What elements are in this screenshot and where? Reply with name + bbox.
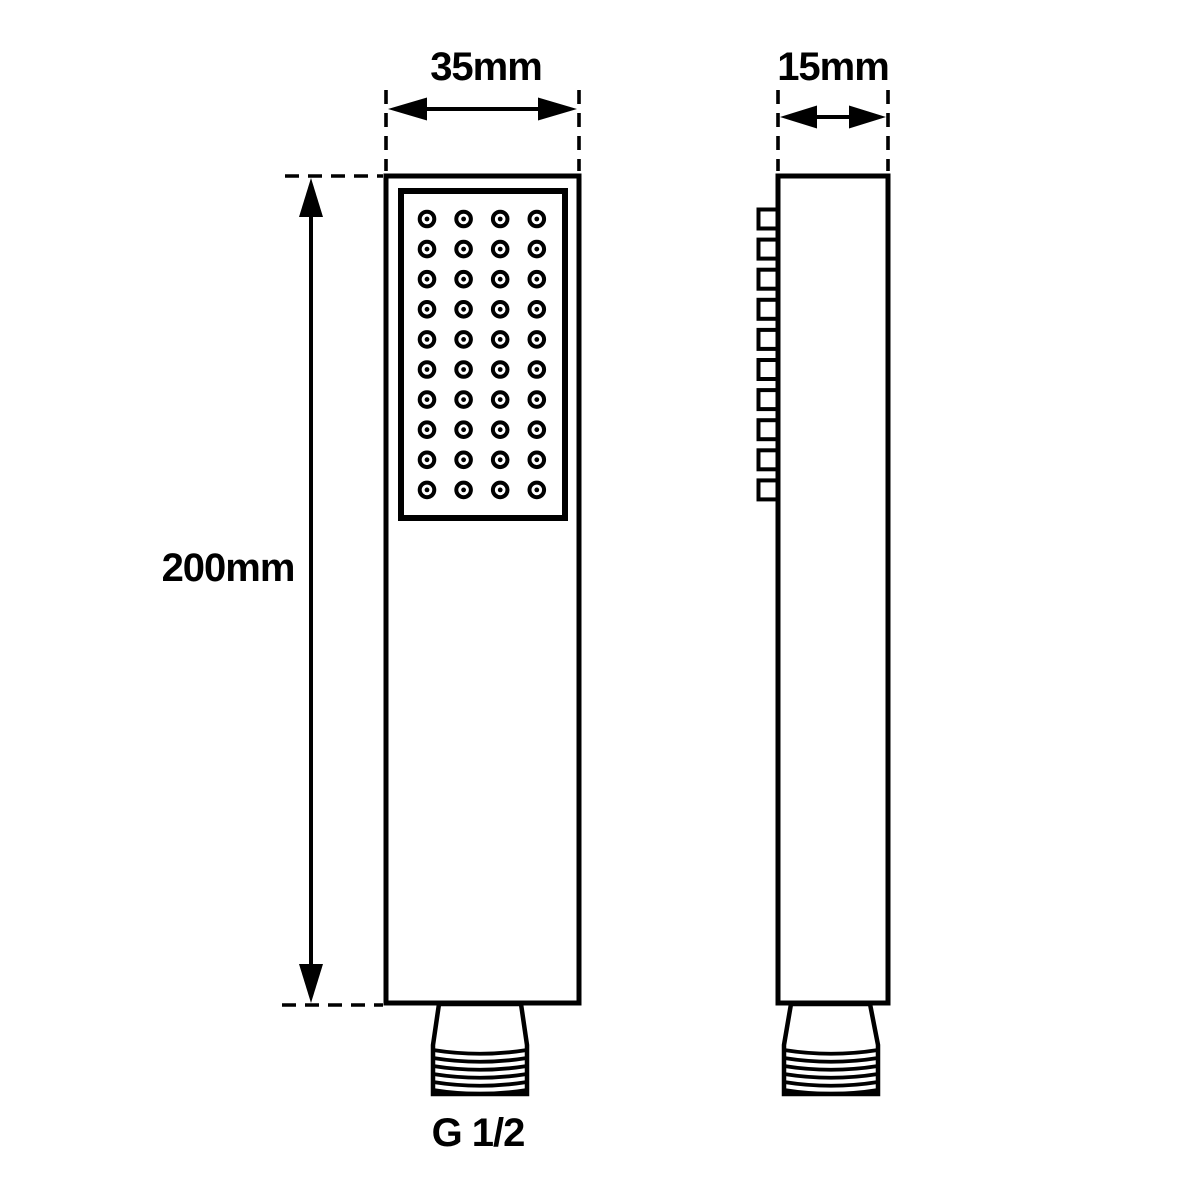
nozzle-center-dot (498, 367, 503, 372)
nozzle-bump (759, 360, 779, 379)
nozzle-center-dot (425, 247, 430, 252)
nozzle-center-dot (534, 247, 539, 252)
nozzle-bump (759, 390, 779, 409)
nozzle-center-dot (425, 488, 430, 493)
nozzle-center-dot (461, 337, 466, 342)
nozzle-center-dot (498, 427, 503, 432)
nozzle-center-dot (498, 397, 503, 402)
nozzle-center-dot (498, 247, 503, 252)
nozzle-center-dot (425, 457, 430, 462)
nozzle-center-dot (425, 427, 430, 432)
height-dimension: 200mm (162, 176, 383, 1005)
nozzle-center-dot (498, 307, 503, 312)
nozzle-center-dot (498, 457, 503, 462)
nozzle-center-dot (425, 337, 430, 342)
nozzle-center-dot (461, 367, 466, 372)
nozzle-center-dot (425, 397, 430, 402)
width-dimension-label: 35mm (430, 45, 542, 89)
nozzle-center-dot (425, 307, 430, 312)
nozzle-bump (759, 420, 779, 439)
nozzle-center-dot (461, 217, 466, 222)
arrowhead-left-icon (780, 106, 817, 129)
nozzle-center-dot (534, 367, 539, 372)
side-view (759, 176, 889, 1094)
arrowhead-up-icon (299, 178, 323, 217)
nozzle-bump (759, 450, 779, 469)
nozzle-center-dot (461, 307, 466, 312)
nozzle-center-dot (461, 457, 466, 462)
nozzle-center-dot (534, 457, 539, 462)
nozzle-center-dot (534, 277, 539, 282)
nozzle-center-dot (498, 337, 503, 342)
nozzle-center-dot (461, 488, 466, 493)
arrowhead-right-icon (538, 98, 577, 121)
nozzle-center-dot (425, 367, 430, 372)
depth-dimension: 15mm (777, 45, 889, 171)
thread-size-label: G 1/2 (432, 1111, 525, 1155)
height-dimension-label: 200mm (162, 546, 295, 590)
side-nozzle-bumps (759, 210, 779, 500)
nozzle-center-dot (425, 277, 430, 282)
nozzle-center-dot (534, 488, 539, 493)
nozzle-center-dot (534, 397, 539, 402)
nozzle-center-dot (534, 307, 539, 312)
front-connector (433, 1004, 527, 1094)
nozzle-center-dot (461, 397, 466, 402)
nozzle-center-dot (534, 217, 539, 222)
nozzle-center-dot (498, 217, 503, 222)
shower-head-diagram: 35mm 15mm 200mm G 1/2 (0, 0, 1200, 1200)
nozzle-center-dot (461, 247, 466, 252)
nozzle-center-dot (461, 277, 466, 282)
nozzle-center-dot (461, 427, 466, 432)
drawing-canvas: 35mm 15mm 200mm G 1/2 (0, 0, 1200, 1200)
nozzle-center-dot (498, 488, 503, 493)
nozzle-bump (759, 330, 779, 349)
nozzle-bump (759, 480, 779, 499)
nozzle-center-dot (425, 217, 430, 222)
arrowhead-left-icon (388, 98, 427, 121)
arrowhead-right-icon (849, 106, 886, 129)
side-body-outline (778, 176, 888, 1003)
nozzle-bump (759, 300, 779, 319)
front-view (386, 176, 579, 1094)
arrowhead-down-icon (299, 964, 323, 1003)
nozzle-bump (759, 210, 779, 229)
front-body-outline (386, 176, 579, 1003)
nozzle-center-dot (498, 277, 503, 282)
nozzle-center-dot (534, 337, 539, 342)
depth-dimension-label: 15mm (777, 45, 889, 89)
side-connector (784, 1004, 878, 1094)
width-dimension: 35mm (386, 45, 579, 171)
nozzle-center-dot (534, 427, 539, 432)
nozzle-bump (759, 270, 779, 289)
nozzle-bump (759, 240, 779, 259)
